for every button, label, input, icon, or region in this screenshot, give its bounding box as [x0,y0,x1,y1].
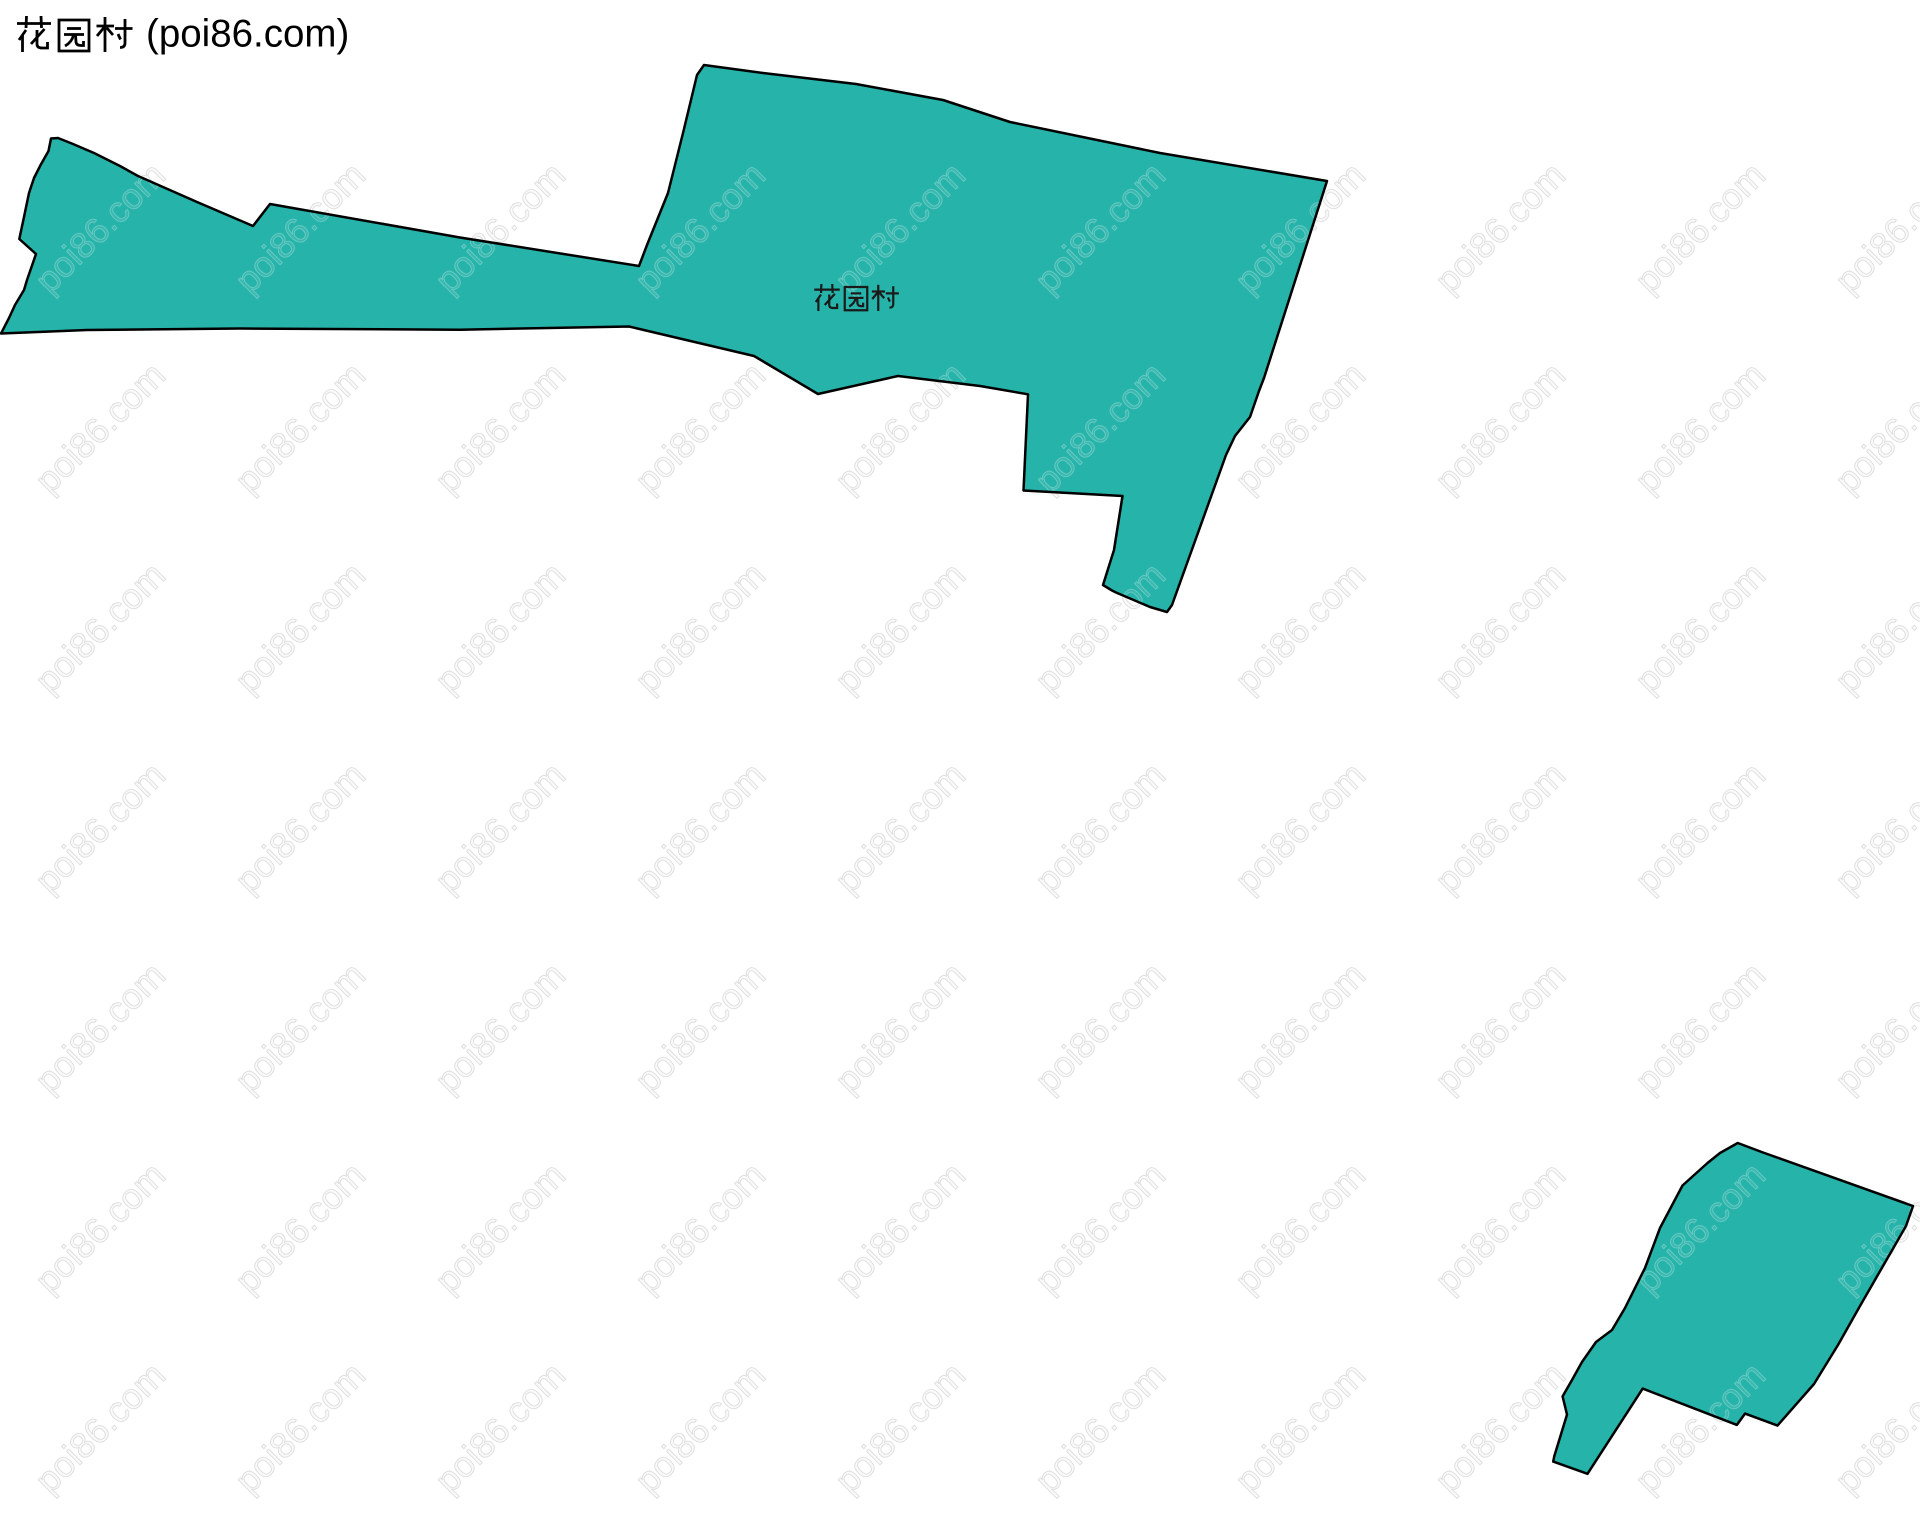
svg-text:(poi86.com): (poi86.com) [146,13,349,56]
